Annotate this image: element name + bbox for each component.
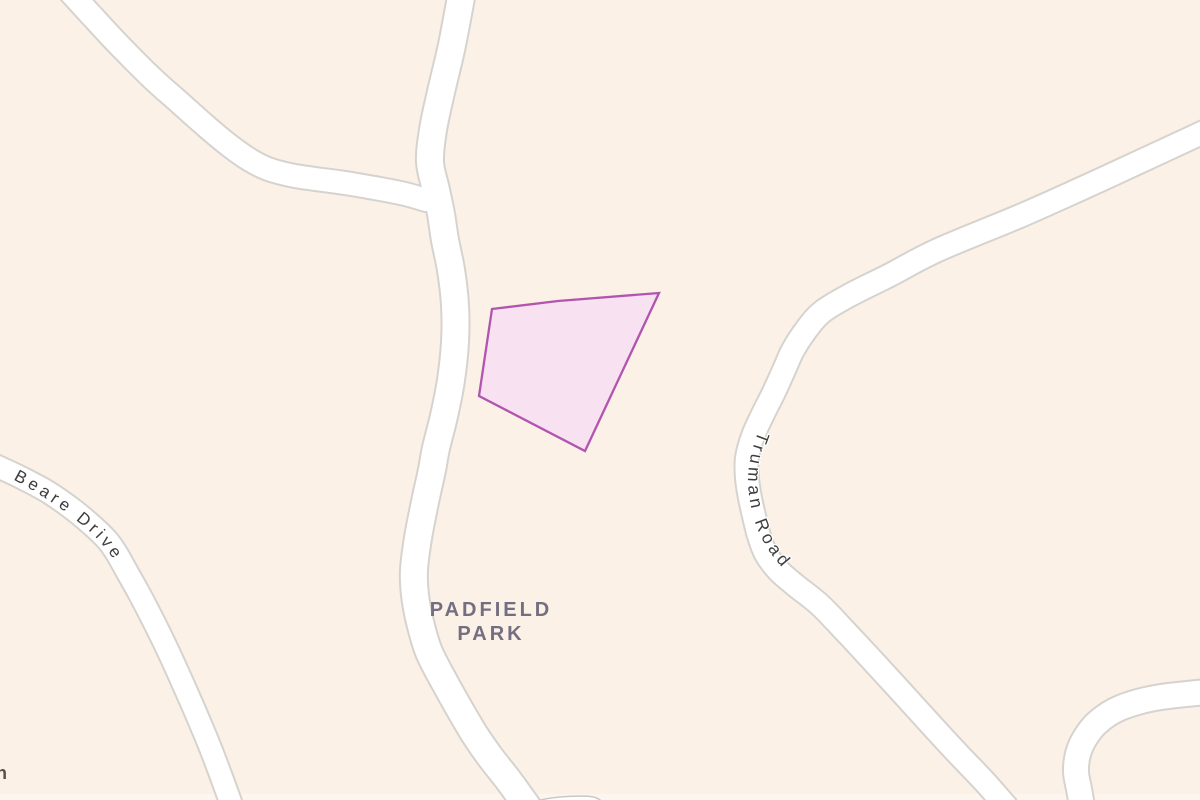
svg-text:PADFIELD: PADFIELD [430,599,553,621]
svg-text:n: n [0,763,7,783]
svg-text:PARK: PARK [457,623,524,645]
